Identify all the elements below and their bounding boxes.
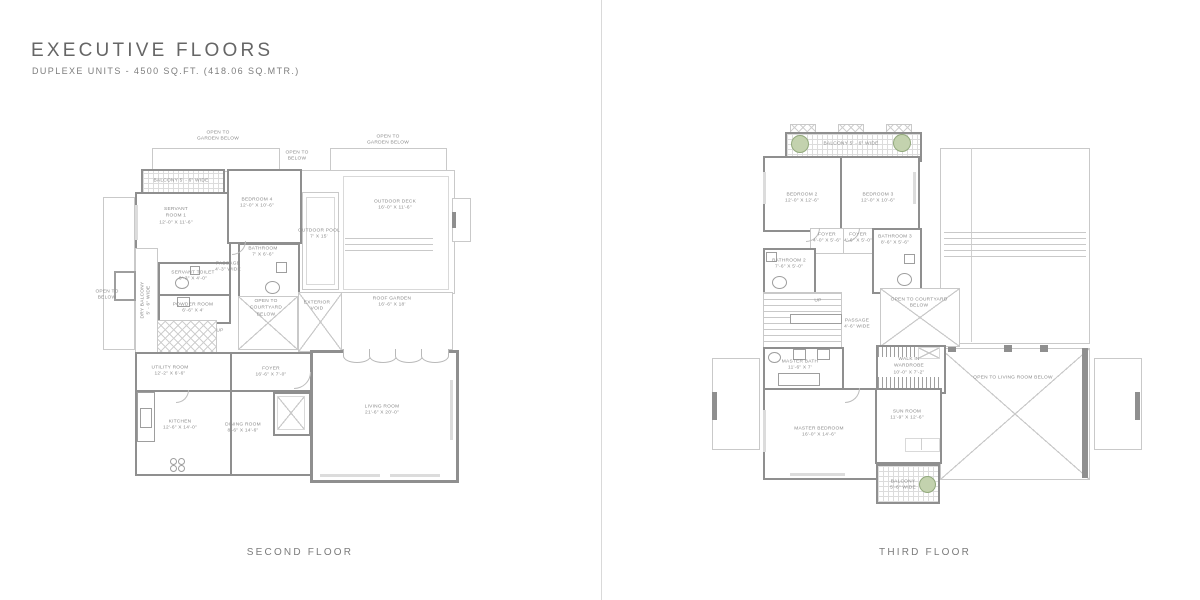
stove-burner <box>170 458 177 465</box>
label-dining: DINING ROOM 8'-6" X 14'-6" <box>225 421 261 434</box>
pillar <box>1004 345 1012 352</box>
stove-burner <box>178 465 185 472</box>
open-to-living-below <box>940 348 1090 480</box>
label-balcony-3f-top: BALCONY 5' - 6" WIDE <box>823 141 878 148</box>
plant-icon <box>893 134 911 152</box>
window-band <box>913 172 916 204</box>
label-roof-garden: ROOF GARDEN 16'-6" X 18' <box>373 295 411 308</box>
label-open-garden-left: OPEN TO GARDEN BELOW <box>197 129 239 142</box>
toilet-fixture <box>265 281 280 294</box>
window-band <box>763 410 766 452</box>
label-passage-2f: PASSAGE 4'-3" WIDE <box>215 260 241 273</box>
label-exterior-void: EXTERIOR VOID <box>304 299 330 312</box>
label-dry-balcony: DRY BALCONY 5' - 6" WIDE <box>139 282 152 319</box>
label-bathroom-3: BATHROOM 3 8'-6" X 5'-6" <box>878 233 912 246</box>
bathtub-fixture <box>778 373 820 386</box>
outdoor-deck-inner <box>343 176 449 290</box>
window-band <box>763 172 766 204</box>
page-subtitle: DUPLEXE UNITS - 4500 SQ.FT. (418.06 SQ.M… <box>32 66 300 76</box>
sink-fixture <box>817 349 830 360</box>
open-garden-roof-right <box>330 148 447 172</box>
label-servant-room: SERVANT ROOM 1 12'-0" X 11'-6" <box>159 206 193 226</box>
label-open-below-left: OPEN TO BELOW <box>95 288 118 301</box>
label-bedroom-2: BEDROOM 2 12'-0" X 12'-6" <box>785 191 819 204</box>
label-outdoor-deck: OUTDOOR DECK 16'-0" X 11'-6" <box>374 198 416 211</box>
room-sun-room <box>875 388 942 464</box>
right-envelope-wall <box>1082 348 1088 478</box>
sink-fixture <box>904 254 915 264</box>
scallop-arc <box>369 349 397 363</box>
label-bathroom-2f: BATHROOM 7' X 6'-6" <box>248 245 277 258</box>
wardrobe-rail-hatch <box>878 377 940 388</box>
stair-rail <box>790 314 842 324</box>
label-foyer-left: FOYER 4'-0" X 5'-6" <box>813 231 841 244</box>
right-tab-pier-3f <box>1135 392 1140 420</box>
left-side-tab <box>712 358 760 450</box>
window-band <box>320 474 380 477</box>
kitchen-sink <box>140 408 152 428</box>
window-band <box>450 380 453 440</box>
label-balcony-3f-bottom: BALCONY 5'-6" WIDE <box>890 478 916 491</box>
label-master-bedroom: MASTER BEDROOM 16'-0" X 14'-6" <box>794 425 844 438</box>
label-passage-3f: PASSAGE 4'-6" WIDE <box>844 317 870 330</box>
center-divider <box>601 0 602 600</box>
label-utility: UTILITY ROOM 12'-2" X 6'-6" <box>152 364 189 377</box>
label-open-garden-right: OPEN TO GARDEN BELOW <box>367 133 409 146</box>
caption-third-floor: THIRD FLOOR <box>879 547 971 558</box>
label-up-2f: UP <box>216 328 223 335</box>
left-tab-pier <box>712 392 717 420</box>
scallop-arc <box>421 349 449 363</box>
label-balcony-2f: BALCONY 5' - 6" WIDE <box>153 178 208 185</box>
label-walk-in-wardrobe: WALK IN WARDROBE 10'-0" X 7'-2" <box>893 356 924 376</box>
label-master-bath: MASTER BATH 11'-6" X 7' <box>782 358 818 371</box>
label-outdoor-pool: OUTDOOR POOL 7' X 15' <box>298 227 340 240</box>
stove-burner <box>170 465 177 472</box>
toilet-fixture <box>897 273 912 286</box>
bench-line <box>921 438 922 450</box>
stove-burner <box>178 458 185 465</box>
terrace-steps <box>944 232 1086 258</box>
label-bedroom-4: BEDROOM 4 12'-0" X 10'-6" <box>240 196 274 209</box>
scallop-arc <box>395 349 423 363</box>
toilet-fixture <box>768 352 781 363</box>
label-bedroom-3: BEDROOM 3 12'-0" X 10'-6" <box>861 191 895 204</box>
label-foyer-right: FOYER 4'-6" X 5'-0" <box>844 231 872 244</box>
caption-second-floor: SECOND FLOOR <box>247 547 353 558</box>
label-kitchen: KITCHEN 12'-6" X 14'-0" <box>163 418 197 431</box>
label-open-courtyard-3f: OPEN TO COURTYARD BELOW <box>891 296 948 309</box>
plant-icon <box>919 476 936 493</box>
label-foyer-2f: FOYER 16'-6" X 7'-0" <box>255 365 286 378</box>
label-open-courtyard-2f: OPEN TO COURTYARD BELOW <box>250 298 282 318</box>
window-band <box>390 474 440 477</box>
page-title: EXECUTIVE FLOORS <box>31 40 273 62</box>
scallop-arc <box>343 349 371 363</box>
window-band <box>135 205 138 240</box>
label-up-3f: UP <box>814 298 821 305</box>
label-servant-toilet: SERVANT TOILET 6'-3" X 4'-0" <box>171 269 214 282</box>
plant-icon <box>791 135 809 153</box>
floorplan-page: { "header": { "title": "EXECUTIVE FLOORS… <box>0 0 1200 600</box>
label-living: LIVING ROOM 21'-6" X 20'-0" <box>365 403 400 416</box>
label-sun-room: SUN ROOM 11'-9" X 12'-6" <box>890 408 924 421</box>
label-bathroom-2: BATHROOM 2 7'-6" X 5'-0" <box>772 257 806 270</box>
label-open-below-top: OPEN TO BELOW <box>285 149 308 162</box>
elevator-cab <box>277 396 305 430</box>
window-band <box>790 473 845 476</box>
toilet-fixture <box>772 276 787 289</box>
deck-steps <box>345 238 433 256</box>
right-tab-pier <box>452 212 456 228</box>
pillar <box>1040 345 1048 352</box>
outdoor-pool-inner <box>306 197 335 285</box>
label-powder-room: POWDER ROOM 6'-6" X 4' <box>173 301 214 314</box>
label-open-living-below: OPEN TO LIVING ROOM BELOW <box>973 375 1052 382</box>
sink-fixture <box>276 262 287 273</box>
sun-room-bench <box>905 438 940 452</box>
